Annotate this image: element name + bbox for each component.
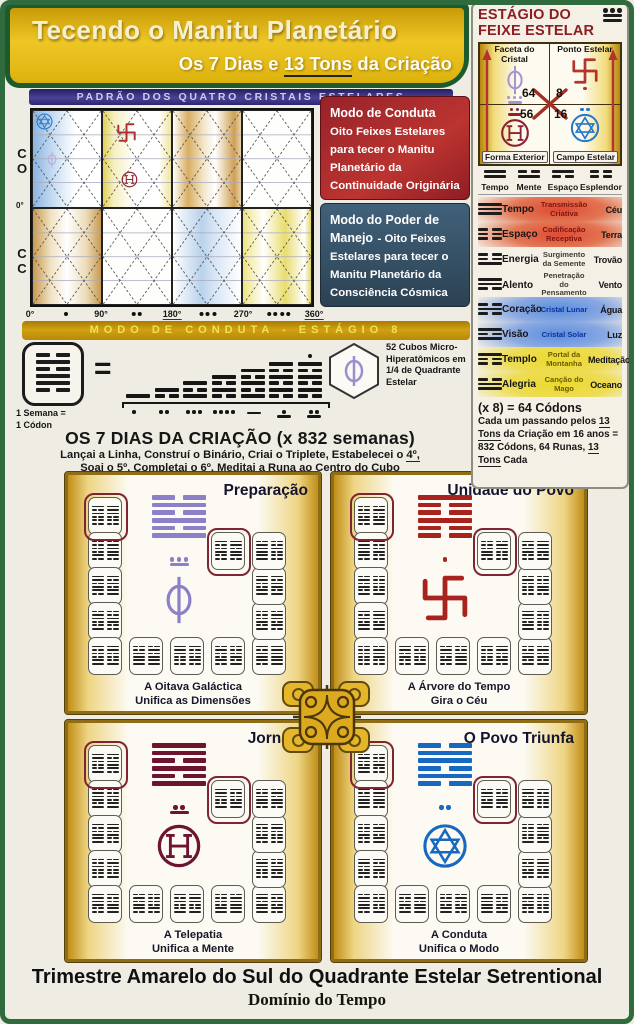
glyph-line-seg: [92, 593, 97, 595]
glyph-line: [107, 837, 119, 839]
glyph-line: [537, 802, 549, 804]
glyph-line-seg: [537, 583, 542, 585]
glyph-line-seg: [92, 649, 97, 651]
table-row: AlentoPenetração do PensamentoVento: [478, 272, 622, 297]
glyph-line-seg: [528, 659, 533, 661]
glyph-line-seg: [487, 649, 492, 651]
quarter-caption-line2: Gira o Céu: [334, 695, 584, 707]
glyph-line-seg: [221, 897, 226, 899]
glyph-line-seg: [298, 381, 308, 385]
glyph-line: [522, 866, 534, 868]
glyph-line: [107, 907, 119, 909]
glyph-line-seg: [269, 369, 279, 373]
glyph-line: [107, 841, 119, 843]
glyph-line-seg: [283, 369, 293, 373]
glyph-line-seg: [256, 841, 261, 843]
glyph-line: [373, 802, 385, 804]
glyph-line-seg: [446, 656, 451, 658]
glyph-line-seg: [195, 656, 200, 658]
glyph-line: [298, 362, 322, 366]
week-card-9: [252, 885, 286, 923]
glyph-line: [522, 789, 534, 791]
glyph-line: [373, 624, 385, 626]
glyph-line-seg: [379, 904, 384, 906]
glyph-line: [271, 876, 283, 878]
glyph-line-seg: [262, 618, 267, 620]
glyph-line: [212, 394, 236, 398]
star-field-hexagram-icon: [422, 823, 468, 869]
glyph-line-seg: [461, 901, 466, 903]
week-card-7: [170, 637, 204, 675]
glyph-line: [373, 894, 385, 896]
glyph-line: [256, 862, 268, 864]
glyph-line: [478, 208, 502, 211]
glyph-line-seg: [543, 659, 548, 661]
glyph-line-seg: [446, 663, 451, 665]
glyph-line-seg: [358, 589, 363, 591]
glyph-line: [455, 659, 467, 661]
glyph-line-seg: [522, 827, 527, 829]
glyph-line-seg: [174, 656, 179, 658]
card-hexagram: [522, 824, 534, 845]
glyph-line: [552, 170, 574, 173]
glyph-line-seg: [379, 894, 384, 896]
glyph-line: [107, 792, 119, 794]
glyph-line: [256, 663, 268, 665]
glyph-line-seg: [522, 907, 527, 909]
glyph-line-seg: [379, 897, 384, 899]
glyph-line-seg: [379, 576, 384, 578]
glyph-line: [189, 901, 201, 903]
glyph-line: [440, 646, 452, 648]
glyph-line-seg: [262, 614, 267, 616]
glyph-line-seg: [379, 872, 384, 874]
glyph-line-seg: [537, 869, 542, 871]
glyph-line: [269, 388, 293, 392]
glyph-line: [418, 774, 472, 779]
glyph-line: [92, 837, 104, 839]
week-card-11: [252, 815, 286, 853]
quarter-panel-3: JornadaA TelepatiaUnifica a Mente: [65, 720, 321, 962]
glyph-line-seg: [528, 824, 533, 826]
glyph-line-seg: [481, 656, 486, 658]
glyph-line-seg: [236, 649, 241, 651]
glyph-line-seg: [440, 663, 445, 665]
glyph-line-seg: [414, 656, 419, 658]
glyph-line: [358, 614, 370, 616]
glyph-line-seg: [543, 579, 548, 581]
star-beam-sidebar: ESTÁGIO DO FEIXE ESTELAR Faceta do Crist…: [471, 2, 629, 489]
glyph-line-seg: [518, 170, 527, 173]
row-name: Alento: [502, 280, 540, 291]
glyph-line-seg: [271, 897, 276, 899]
day-number: [212, 410, 236, 418]
glyph-line-seg: [271, 859, 276, 861]
glyph-line-seg: [298, 369, 308, 373]
glyph-line: [496, 649, 508, 651]
glyph-line: [496, 659, 508, 661]
glyph-line-seg: [189, 653, 194, 655]
glyph-line-seg: [565, 175, 574, 178]
glyph-line: [152, 774, 206, 779]
glyph-line: [399, 907, 411, 909]
codon-table: TempoTransmissão CriativaCéuEspaçoCodifi…: [478, 197, 622, 397]
glyph-line-seg: [537, 593, 542, 595]
glyph-line: [271, 789, 283, 791]
weave-cell: [32, 208, 102, 306]
glyph-line-seg: [364, 841, 369, 843]
glyph-line: [107, 649, 119, 651]
mayan-dot: [446, 805, 451, 810]
card-hexagram: [399, 894, 411, 915]
glyph-line: [373, 869, 385, 871]
glyph-line-seg: [522, 558, 527, 560]
glyph-line-seg: [277, 911, 282, 913]
glyph-line-seg: [543, 554, 548, 556]
glyph-line-seg: [174, 897, 179, 899]
glyph-line-seg: [113, 611, 118, 613]
quadrant-number: 8: [556, 86, 563, 100]
glyph-line: [271, 907, 283, 909]
glyph-line: [152, 781, 206, 786]
glyph-line: [537, 614, 549, 616]
glyph-line-seg: [492, 237, 502, 240]
glyph-line: [418, 766, 472, 771]
glyph-line: [373, 653, 385, 655]
glyph-line: [92, 551, 104, 553]
glyph-line: [241, 388, 265, 392]
glyph-line: [215, 897, 227, 899]
glyph-line: [414, 649, 426, 651]
glyph-line: [256, 897, 268, 899]
glyph-line-seg: [189, 907, 194, 909]
glyph-line: [256, 653, 268, 655]
glyph-line: [478, 333, 502, 336]
glyph-line: [373, 611, 385, 613]
glyph-line-seg: [230, 659, 235, 661]
glyph-line: [481, 663, 493, 665]
glyph-line-seg: [312, 369, 322, 373]
glyph-line-seg: [379, 806, 384, 808]
glyph-line: [537, 897, 549, 899]
card-hexagram: [537, 646, 549, 667]
glyph-line: [256, 872, 268, 874]
glyph-line-seg: [373, 586, 378, 588]
glyph-line: [271, 653, 283, 655]
glyph-line: [215, 894, 227, 896]
card-hexagram: [107, 611, 119, 632]
weave-cell: [102, 208, 172, 306]
glyph-line: [537, 663, 549, 665]
glyph-line: [133, 901, 145, 903]
glyph-line: [174, 659, 186, 661]
mayan-dots: [173, 805, 185, 810]
day-stack: [241, 369, 265, 398]
glyph-line: [358, 837, 370, 839]
axis-mayan-dots: [199, 312, 216, 316]
glyph-line: [92, 558, 104, 560]
mayan-dots: [309, 410, 319, 414]
axis-dot: [273, 312, 277, 316]
glyph-line-seg: [603, 175, 612, 178]
glyph-line: [155, 394, 179, 398]
grid-cell-label: Faceta do Cristal: [480, 45, 549, 64]
card-hexagram: [358, 541, 370, 562]
glyph-line: [358, 901, 370, 903]
glyph-line: [152, 533, 206, 538]
glyph-line-seg: [492, 303, 502, 306]
glyph-line: [358, 869, 370, 871]
glyph-line: [478, 253, 502, 256]
glyph-line-seg: [528, 901, 533, 903]
glyph-line-seg: [139, 646, 144, 648]
glyph-line-seg: [98, 544, 103, 546]
glyph-line: [522, 841, 534, 843]
axis-mayan-dots: [267, 312, 291, 316]
glyph-line: [256, 541, 268, 543]
glyph-line-seg: [113, 901, 118, 903]
trigram-coração-icon: [478, 303, 502, 316]
glyph-line-seg: [358, 866, 363, 868]
glyph-line: [256, 901, 268, 903]
glyph-line: [481, 901, 493, 903]
sidebar-title-line1: ESTÁGIO DO: [478, 8, 594, 24]
glyph-line: [230, 663, 242, 665]
glyph-line: [92, 827, 104, 829]
glyph-line-seg: [528, 911, 533, 913]
glyph-line: [107, 904, 119, 906]
glyph-line-seg: [543, 583, 548, 585]
seven-days-section: 1 Semana = 1 Códon = 52 Cubos Micro-Hipe…: [10, 340, 470, 472]
glyph-line: [358, 907, 370, 909]
glyph-line-seg: [262, 831, 267, 833]
quarter-caption-line1: A Conduta: [334, 929, 584, 941]
mayan-dot: [439, 805, 444, 810]
glyph-line: [107, 862, 119, 864]
week-card-6: [129, 885, 163, 923]
glyph-line-seg: [373, 558, 378, 560]
glyph-line-seg: [449, 781, 472, 786]
glyph-line: [496, 911, 508, 913]
glyph-line: [212, 388, 236, 392]
glyph-line: [256, 841, 268, 843]
glyph-line: [107, 897, 119, 899]
glyph-line: [399, 656, 411, 658]
row-desc: Cristal Lunar: [540, 306, 588, 315]
glyph-line-seg: [215, 904, 220, 906]
glyph-line: [107, 589, 119, 591]
glyph-line: [418, 526, 472, 531]
glyph-line-seg: [256, 869, 261, 871]
glyph-line-seg: [373, 897, 378, 899]
glyph-line: [189, 911, 201, 913]
glyph-line: [522, 621, 534, 623]
mayan-4-icon: [213, 410, 235, 418]
grid-cell-tl: Faceta do Cristal: [480, 44, 550, 104]
glyph-line: [522, 907, 534, 909]
week-card-12: [518, 780, 552, 818]
glyph-line-seg: [113, 792, 118, 794]
row-label-co: C O: [16, 147, 28, 177]
glyph-line-seg: [256, 618, 261, 620]
glyph-line-seg: [271, 872, 276, 874]
glyph-line-seg: [277, 897, 282, 899]
mayan-bar: [603, 14, 622, 17]
glyph-line-seg: [543, 824, 548, 826]
glyph-line: [298, 381, 322, 385]
card-hexagram: [107, 859, 119, 880]
glyph-line: [271, 869, 283, 871]
glyph-line: [107, 593, 119, 595]
quarter-caption-line2: Unifica o Modo: [334, 943, 584, 955]
quarter-caption-line1: A Árvore do Tempo: [334, 681, 584, 693]
glyph-line-seg: [528, 862, 533, 864]
glyph-line-seg: [492, 362, 502, 365]
glyph-line: [230, 656, 242, 658]
glyph-line-seg: [522, 659, 527, 661]
card-hexagram: [358, 859, 370, 880]
glyph-line: [92, 618, 104, 620]
card-hexagram: [373, 824, 385, 845]
glyph-line: [358, 544, 370, 546]
card-hexagram: [358, 646, 370, 667]
glyph-line-seg: [528, 586, 533, 588]
glyph-line: [358, 824, 370, 826]
card-hexagram: [358, 789, 370, 810]
glyph-line-seg: [373, 907, 378, 909]
card-hexagram: [373, 894, 385, 915]
axis-dot: [280, 312, 284, 316]
glyph-line-seg: [522, 586, 527, 588]
week-card-7: [170, 885, 204, 923]
glyph-line-seg: [92, 624, 97, 626]
glyph-line-seg: [528, 834, 533, 836]
glyph-line: [358, 589, 370, 591]
glyph-line: [358, 859, 370, 861]
glyph-line-seg: [492, 253, 502, 256]
glyph-line: [440, 656, 452, 658]
glyph-line-seg: [358, 649, 363, 651]
glyph-line: [271, 618, 283, 620]
card-hexagram: [537, 789, 549, 810]
glyph-line: [522, 876, 534, 878]
glyph-line: [92, 859, 104, 861]
glyph-line-seg: [543, 621, 548, 623]
glyph-line-seg: [440, 656, 445, 658]
glyph-line-seg: [195, 907, 200, 909]
card-hexagram: [107, 576, 119, 597]
glyph-line-seg: [107, 901, 112, 903]
glyph-line-seg: [230, 653, 235, 655]
zero-degree-label: 0°: [16, 201, 24, 210]
glyph-line-seg: [271, 796, 276, 798]
glyph-line-seg: [154, 653, 159, 655]
glyph-line: [271, 806, 283, 808]
glyph-line-seg: [98, 593, 103, 595]
day-stack: [183, 381, 207, 398]
days-bracket: [122, 402, 330, 408]
glyph-line: [522, 544, 534, 546]
mayan-5-icon: [247, 410, 261, 418]
glyph-line: [358, 583, 370, 585]
glyph-line: [478, 362, 502, 365]
glyph-line-seg: [107, 653, 112, 655]
glyph-line: [107, 802, 119, 804]
glyph-line-seg: [478, 303, 488, 306]
glyph-line: [256, 576, 268, 578]
glyph-line: [256, 659, 268, 661]
glyph-line: [271, 576, 283, 578]
glyph-line: [256, 558, 268, 560]
glyph-line: [358, 554, 370, 556]
glyph-line: [256, 831, 268, 833]
mayan-bar: [307, 415, 321, 418]
glyph-line-seg: [107, 579, 112, 581]
glyph-line: [36, 374, 70, 378]
glyph-line: [256, 579, 268, 581]
mode-power-box: Modo do Poder de Manejo - Oito Feixes Es…: [320, 203, 470, 307]
glyph-line-seg: [449, 533, 472, 538]
highlight-frame: [473, 776, 517, 824]
mayan-dot: [213, 410, 217, 414]
glyph-line-seg: [528, 621, 533, 623]
row-element: Luz: [588, 330, 622, 340]
card-hexagram: [522, 894, 534, 915]
glyph-line: [133, 653, 145, 655]
glyph-line: [522, 799, 534, 801]
glyph-line-seg: [92, 911, 97, 913]
glyph-line: [537, 656, 549, 658]
week-card-8: [211, 885, 245, 923]
glyph-line-seg: [98, 551, 103, 553]
glyph-line: [298, 369, 322, 373]
glyph-line: [537, 789, 549, 791]
glyph-line-seg: [148, 894, 153, 896]
glyph-line-seg: [543, 806, 548, 808]
card-hexagram: [496, 894, 508, 915]
glyph-line: [133, 911, 145, 913]
card-hexagram: [133, 894, 145, 915]
glyph-line: [148, 901, 160, 903]
glyph-line-seg: [148, 901, 153, 903]
glyph-line-seg: [113, 872, 118, 874]
glyph-line: [373, 558, 385, 560]
glyph-line: [189, 907, 201, 909]
mayan-1-icon: [132, 410, 136, 418]
glyph-line: [358, 611, 370, 613]
glyph-line-seg: [522, 796, 527, 798]
card-hexagram: [358, 576, 370, 597]
glyph-line: [92, 554, 104, 556]
glyph-line-seg: [56, 388, 70, 392]
mayan-dot: [583, 87, 587, 91]
card-hexagram: [107, 824, 119, 845]
card-hexagram: [522, 859, 534, 880]
glyph-line: [189, 894, 201, 896]
glyph-line-seg: [364, 621, 369, 623]
highlight-frame: [473, 528, 517, 576]
glyph-line-seg: [107, 659, 112, 661]
week-card-10: [252, 850, 286, 888]
trigram-visão-icon: [478, 328, 502, 341]
glyph-line: [92, 907, 104, 909]
glyph-line-seg: [528, 907, 533, 909]
glyph-line-seg: [478, 362, 488, 365]
card-hexagram: [230, 894, 242, 915]
glyph-line: [107, 827, 119, 829]
glyph-line: [537, 859, 549, 861]
glyph-line: [537, 586, 549, 588]
